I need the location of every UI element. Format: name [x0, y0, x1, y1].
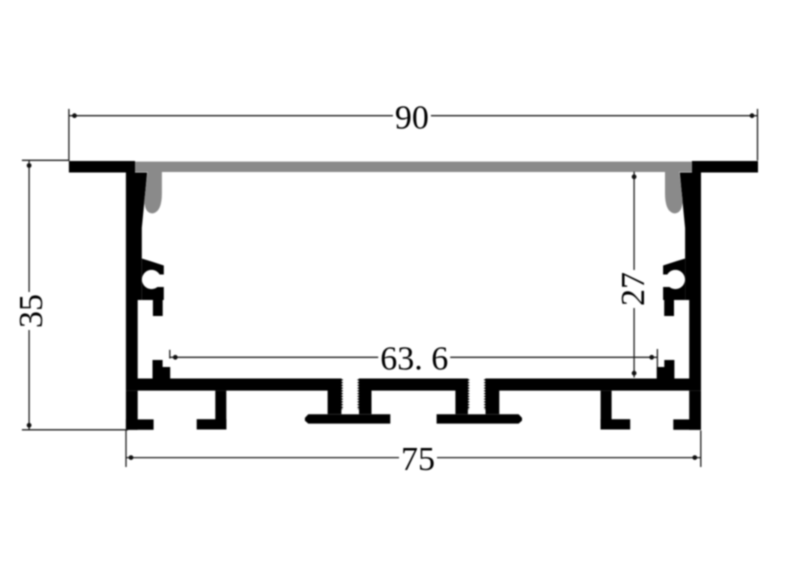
svg-text:75: 75: [401, 441, 435, 478]
svg-text:90: 90: [395, 100, 429, 137]
svg-text:35: 35: [13, 294, 50, 328]
svg-text:63. 6: 63. 6: [380, 340, 448, 377]
svg-text:27: 27: [615, 272, 652, 306]
